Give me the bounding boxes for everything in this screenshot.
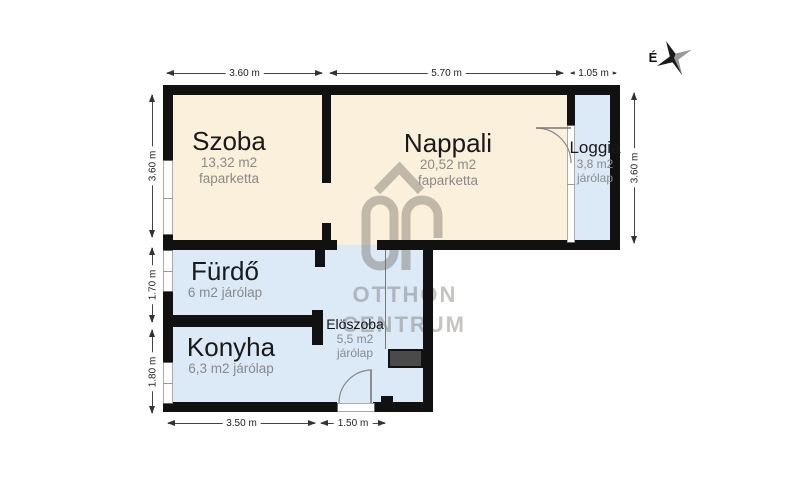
dim-top-2: 5.70 m bbox=[330, 73, 563, 74]
room-floor-eloszoba: járólap bbox=[326, 346, 384, 360]
eloszoba-partition-line bbox=[385, 250, 386, 349]
wall-doorstop-tick bbox=[381, 396, 393, 403]
window-szoba bbox=[163, 160, 173, 235]
compass-star-icon bbox=[657, 41, 691, 75]
wall-furdo-right-stub bbox=[315, 250, 325, 267]
room-name-szoba: Szoba bbox=[192, 128, 266, 155]
dim-bottom-1: 3.50 m bbox=[168, 423, 315, 424]
entrance-threshold bbox=[337, 403, 375, 412]
dim-top-2-label: 5.70 m bbox=[427, 67, 466, 80]
wall-konyha-stub bbox=[312, 310, 323, 345]
window-konyha bbox=[163, 362, 173, 404]
floor-plan: OTTHON CENTRUM Szoba 13,32 m2 faparketta… bbox=[0, 0, 812, 500]
dim-left-1-label: 3.60 m bbox=[147, 147, 160, 186]
dim-bottom-2-label: 1.50 m bbox=[334, 417, 373, 430]
room-area-konyha: 6,3 m2 járólap bbox=[187, 361, 275, 377]
room-name-konyha: Konyha bbox=[187, 334, 275, 361]
room-label-furdo: Fürdő 6 m2 járólap bbox=[188, 258, 262, 301]
room-label-szoba: Szoba 13,32 m2 faparketta bbox=[192, 128, 266, 187]
dim-right-1-label: 3.60 m bbox=[629, 149, 642, 188]
room-area-eloszoba: 5,5 m2 bbox=[326, 332, 384, 346]
dim-top-3: 1.05 m bbox=[571, 73, 616, 74]
room-name-loggia: Loggia bbox=[569, 139, 620, 157]
wall-band-bottom-right bbox=[377, 240, 620, 250]
closet bbox=[388, 349, 423, 368]
room-label-loggia: Loggia 3,8 m2 járólap bbox=[569, 139, 620, 185]
dim-left-3-label: 1.80 m bbox=[147, 352, 160, 391]
dim-left-2-label: 1.70 m bbox=[147, 266, 160, 305]
dim-top-1-label: 3.60 m bbox=[225, 67, 264, 80]
wall-szoba-nappali-lower bbox=[322, 223, 331, 245]
wall-outer-bottom-left bbox=[163, 402, 337, 412]
compass-north-label: É bbox=[649, 50, 658, 65]
dim-top-1: 3.60 m bbox=[167, 73, 322, 74]
dim-right-1: 3.60 m bbox=[634, 93, 635, 243]
wall-band-bottom-left bbox=[163, 240, 337, 250]
compass-star-highlight bbox=[674, 50, 691, 75]
room-floor-nappali: faparketta bbox=[404, 173, 492, 189]
room-area-furdo: 6 m2 járólap bbox=[188, 285, 262, 301]
dim-left-2: 1.70 m bbox=[152, 248, 153, 322]
dim-top-3-label: 1.05 m bbox=[574, 67, 613, 80]
wall-outer-top bbox=[163, 85, 620, 95]
dim-left-3: 1.80 m bbox=[152, 330, 153, 413]
room-floor-szoba: faparketta bbox=[192, 171, 266, 187]
room-name-furdo: Fürdő bbox=[188, 258, 262, 285]
room-label-eloszoba: Elöszoba 5,5 m2 járólap bbox=[326, 317, 384, 360]
room-name-eloszoba: Elöszoba bbox=[326, 317, 384, 332]
wall-loggia-top bbox=[567, 95, 575, 125]
dim-left-1: 3.60 m bbox=[152, 95, 153, 237]
dim-bottom-1-label: 3.50 m bbox=[222, 417, 261, 430]
wall-szoba-nappali-upper bbox=[322, 95, 331, 183]
room-label-konyha: Konyha 6,3 m2 járólap bbox=[187, 334, 275, 377]
dim-bottom-2: 1.50 m bbox=[321, 423, 385, 424]
room-name-nappali: Nappali bbox=[404, 130, 492, 157]
room-area-szoba: 13,32 m2 bbox=[192, 155, 266, 171]
room-floor-loggia: járólap bbox=[569, 171, 620, 185]
room-area-nappali: 20,52 m2 bbox=[404, 157, 492, 173]
room-label-nappali: Nappali 20,52 m2 faparketta bbox=[404, 130, 492, 189]
wall-furdo-konyha bbox=[173, 315, 312, 327]
window-furdo bbox=[163, 250, 173, 292]
room-area-loggia: 3,8 m2 bbox=[569, 157, 620, 171]
wall-eloszoba-right bbox=[423, 250, 433, 412]
